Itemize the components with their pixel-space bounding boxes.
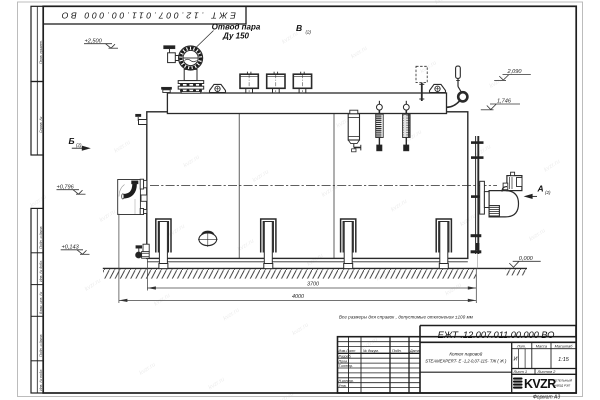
svg-text:В: В — [296, 23, 302, 33]
svg-text:Перв. примен.: Перв. примен. — [39, 40, 43, 64]
svg-text:Пров.: Пров. — [339, 359, 348, 363]
svg-text:Н.контр.: Н.контр. — [339, 379, 354, 383]
svg-text:Т.контр.: Т.контр. — [339, 364, 354, 368]
svg-text:ЗАВОД РЭП: ЗАВОД РЭП — [553, 384, 571, 388]
svg-text:Инв. № дубл.: Инв. № дубл. — [39, 260, 43, 282]
svg-text:Дата: Дата — [409, 349, 419, 353]
svg-text:Утв.: Утв. — [339, 384, 347, 388]
svg-text:№ докум.: № докум. — [363, 349, 379, 353]
svg-text:ЕЖТ .12.007.011.00.000 ВО: ЕЖТ .12.007.011.00.000 ВО — [438, 329, 556, 340]
svg-text:KVZR: KVZR — [524, 377, 556, 391]
svg-text:Разраб.: Разраб. — [339, 354, 352, 358]
svg-text:+0,796: +0,796 — [57, 184, 75, 190]
svg-text:3700: 3700 — [307, 281, 319, 287]
svg-text:Подп.: Подп. — [392, 349, 402, 353]
svg-text:Изм.Лист: Изм.Лист — [339, 349, 356, 353]
svg-text:Лист 1: Лист 1 — [513, 369, 528, 374]
svg-text:2,090: 2,090 — [507, 69, 523, 75]
svg-text:1,746: 1,746 — [497, 98, 512, 104]
svg-text:(2): (2) — [306, 30, 312, 35]
svg-text:Все размеры для справок , допу: Все размеры для справок , допустимые отк… — [339, 315, 473, 320]
svg-text:+0,143: +0,143 — [62, 244, 80, 250]
svg-text:Взам. инв. №: Взам. инв. № — [39, 292, 43, 314]
svg-text:КОТЕЛЬНЫЙ: КОТЕЛЬНЫЙ — [553, 379, 573, 383]
svg-text:1:15: 1:15 — [558, 357, 570, 363]
svg-text:Лит.: Лит. — [516, 344, 526, 348]
svg-text:И: И — [514, 357, 518, 363]
svg-text:Масса: Масса — [536, 344, 547, 348]
svg-text:Б: Б — [69, 136, 75, 146]
svg-text:Формат А3: Формат А3 — [533, 394, 561, 400]
svg-text:STEAMEXPERT- Е -1,2-0,07-115-: STEAMEXPERT- Е -1,2-0,07-115- ТЖ ( Ж ) — [425, 359, 507, 364]
svg-text:0,000: 0,000 — [519, 256, 534, 262]
svg-text:4000: 4000 — [292, 294, 304, 300]
svg-text:+2,500: +2,500 — [85, 38, 103, 44]
svg-text:ЕЖТ .12.007.011.00.000 ВО: ЕЖТ .12.007.011.00.000 ВО — [59, 10, 236, 20]
svg-text:Подп. и дата: Подп. и дата — [39, 227, 43, 250]
svg-text:Ду 150: Ду 150 — [222, 32, 250, 41]
svg-text:Масштаб: Масштаб — [555, 344, 574, 348]
svg-text:(2): (2) — [545, 190, 551, 195]
svg-text:Листов 2: Листов 2 — [537, 369, 557, 374]
svg-text:Отвод пара: Отвод пара — [212, 23, 261, 32]
svg-text:(2): (2) — [76, 143, 82, 148]
svg-text:А: А — [537, 184, 544, 194]
svg-text:Справ. №: Справ. № — [39, 117, 43, 133]
svg-text:Котел паровой: Котел паровой — [449, 351, 482, 357]
svg-text:Инв. № подл.: Инв. № подл. — [39, 369, 43, 391]
svg-text:Подп. и дата: Подп. и дата — [39, 335, 43, 358]
